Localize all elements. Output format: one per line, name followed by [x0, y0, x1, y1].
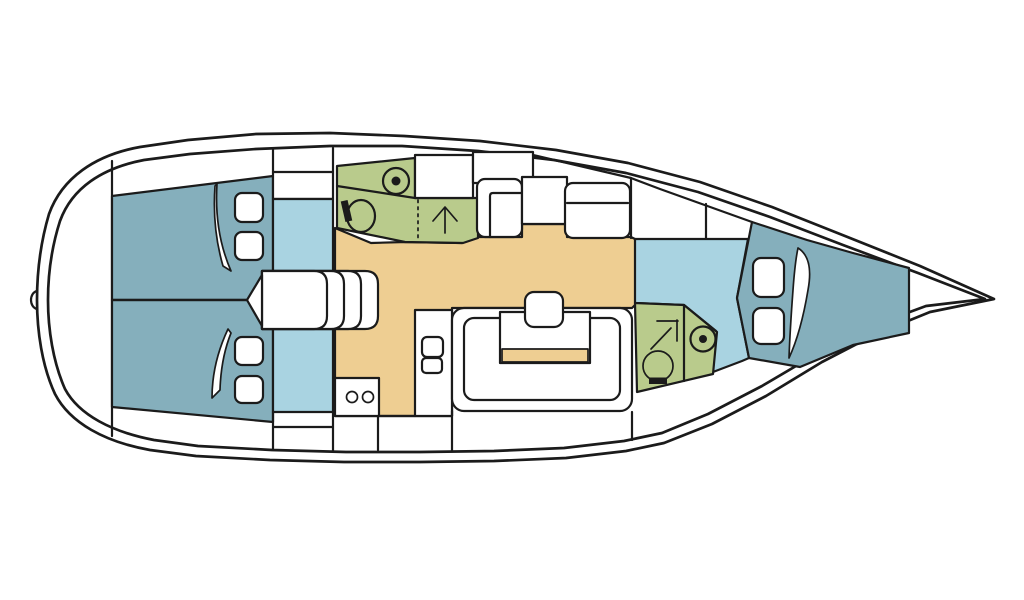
settee-forward-left	[477, 179, 522, 237]
aft-starboard-pillow-2	[235, 376, 263, 403]
salon-stool	[525, 292, 563, 327]
plan-root	[31, 133, 994, 462]
aft-sink-drain-icon	[392, 177, 401, 186]
forward-berth-pillow-1	[753, 258, 784, 297]
settee-side-table	[522, 177, 567, 224]
forward-sink-drain-icon	[699, 335, 707, 343]
aft-locker-top	[273, 172, 333, 199]
settee-forward-right	[565, 183, 630, 238]
boat-floor-plan-canvas	[0, 0, 1024, 600]
companionway-hatch	[262, 271, 327, 329]
boat-floor-plan	[0, 0, 1024, 600]
forward-berth-pillow-2	[753, 308, 784, 344]
aft-head-locker-1	[415, 155, 473, 198]
galley-stove-counter	[415, 310, 452, 416]
salon-table-leaf	[502, 349, 588, 362]
forward-toilet-seat-mark	[649, 378, 667, 385]
aft-port-pillow-1	[235, 193, 263, 222]
aft-port-pillow-2	[235, 232, 263, 260]
aft-starboard-pillow-1	[235, 337, 263, 365]
